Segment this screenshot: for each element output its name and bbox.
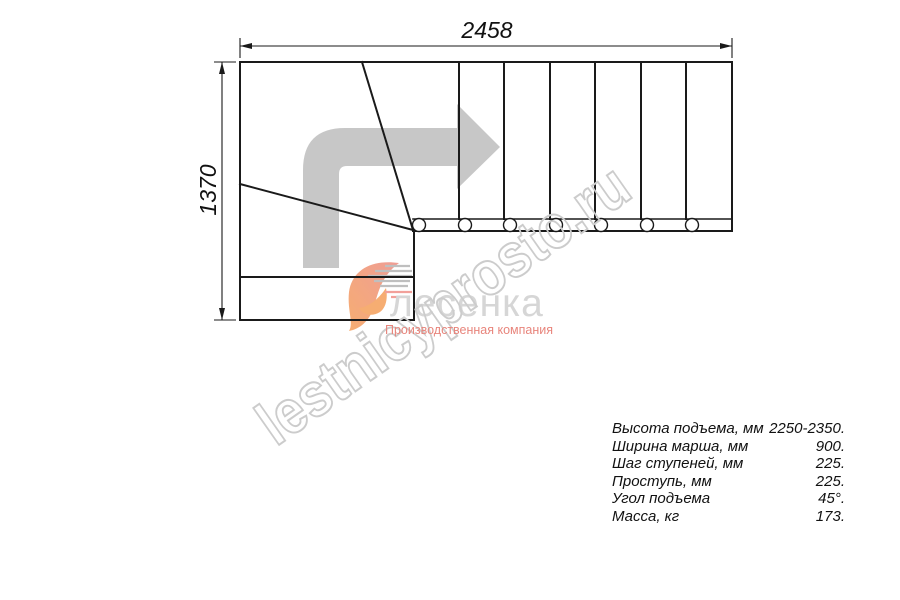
dimension-height-label: 1370	[195, 164, 221, 215]
stair-drawing-page: лесенка	[0, 0, 900, 600]
spec-row-height: Высота подъема, мм 2250-2350.	[612, 420, 845, 438]
spec-label: Угол подъема	[612, 490, 710, 508]
spec-row-angle: Угол подъема 45°.	[612, 490, 845, 508]
dimension-arrow	[219, 308, 225, 320]
baluster	[686, 219, 699, 232]
baluster	[459, 219, 472, 232]
spec-label: Высота подъема, мм	[612, 420, 764, 438]
spec-value: 173.	[816, 508, 845, 526]
spec-value: 900.	[816, 438, 845, 456]
logo-tagline: Производственная компания	[385, 323, 553, 337]
spec-row-flight-width: Ширина марша, мм 900.	[612, 438, 845, 456]
spec-value: 2250-2350.	[769, 420, 845, 438]
baluster	[641, 219, 654, 232]
dimension-width-label: 2458	[460, 17, 512, 43]
dimension-arrow	[720, 43, 732, 49]
dimension-arrow	[240, 43, 252, 49]
specs-table: Высота подъема, мм 2250-2350. Ширина мар…	[612, 420, 845, 526]
dimension-arrow	[219, 62, 225, 74]
baluster	[413, 219, 426, 232]
spec-label: Проступь, мм	[612, 473, 712, 491]
spec-row-step-pitch: Шаг ступеней, мм 225.	[612, 455, 845, 473]
spec-label: Шаг ступеней, мм	[612, 455, 743, 473]
spec-row-tread: Проступь, мм 225.	[612, 473, 845, 491]
spec-label: Масса, кг	[612, 508, 679, 526]
spec-value: 225.	[816, 473, 845, 491]
spec-value: 225.	[816, 455, 845, 473]
spec-row-mass: Масса, кг 173.	[612, 508, 845, 526]
spec-label: Ширина марша, мм	[612, 438, 748, 456]
spec-value: 45°.	[818, 490, 845, 508]
